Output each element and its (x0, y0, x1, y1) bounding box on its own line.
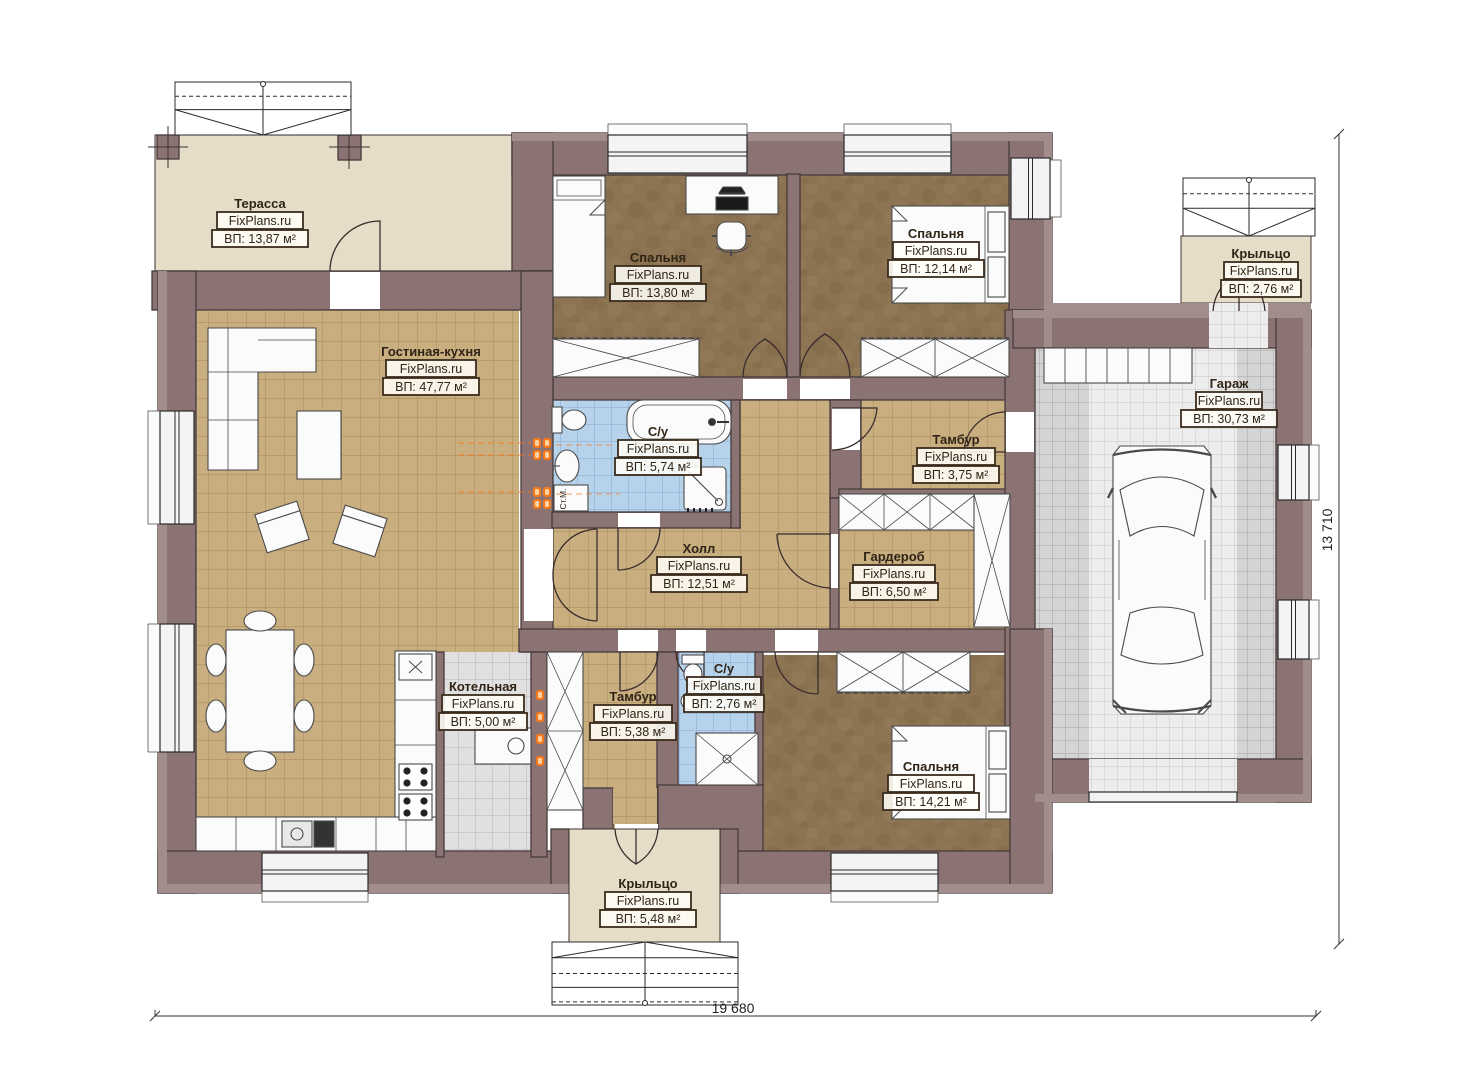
svg-text:ВП: 2,76 м²: ВП: 2,76 м² (1229, 282, 1294, 296)
svg-text:ВП: 5,74 м²: ВП: 5,74 м² (626, 460, 691, 474)
svg-text:ВП: 13,80 м²: ВП: 13,80 м² (622, 286, 694, 300)
svg-text:ВП: 5,00 м²: ВП: 5,00 м² (451, 715, 516, 729)
svg-text:ВП: 30,73 м²: ВП: 30,73 м² (1193, 412, 1265, 426)
svg-text:Гардероб: Гардероб (863, 549, 924, 564)
svg-text:Терасса: Терасса (234, 196, 286, 211)
svg-text:Спальня: Спальня (908, 226, 964, 241)
svg-text:С/у: С/у (648, 424, 669, 439)
svg-text:FixPlans.ru: FixPlans.ru (693, 679, 756, 693)
svg-text:FixPlans.ru: FixPlans.ru (863, 567, 926, 581)
svg-text:FixPlans.ru: FixPlans.ru (617, 894, 680, 908)
svg-text:FixPlans.ru: FixPlans.ru (668, 559, 731, 573)
svg-text:Спальня: Спальня (903, 759, 959, 774)
svg-text:FixPlans.ru: FixPlans.ru (627, 268, 690, 282)
svg-text:ВП: 12,51 м²: ВП: 12,51 м² (663, 577, 735, 591)
svg-text:FixPlans.ru: FixPlans.ru (1198, 394, 1261, 408)
svg-text:С/у: С/у (714, 661, 735, 676)
svg-text:Спальня: Спальня (630, 250, 686, 265)
svg-text:FixPlans.ru: FixPlans.ru (905, 244, 968, 258)
svg-text:19 680: 19 680 (712, 1000, 755, 1016)
svg-text:ВП: 3,75 м²: ВП: 3,75 м² (924, 468, 989, 482)
svg-text:Холл: Холл (683, 541, 716, 556)
svg-text:Крыльцо: Крыльцо (1231, 246, 1290, 261)
svg-text:Тамбур: Тамбур (609, 689, 656, 704)
svg-text:ВП: 13,87 м²: ВП: 13,87 м² (224, 232, 296, 246)
svg-text:FixPlans.ru: FixPlans.ru (627, 442, 690, 456)
svg-text:Крыльцо: Крыльцо (618, 876, 677, 891)
svg-text:ВП: 14,21 м²: ВП: 14,21 м² (895, 795, 967, 809)
svg-text:Ст.М.: Ст.М. (558, 489, 568, 510)
svg-text:FixPlans.ru: FixPlans.ru (925, 450, 988, 464)
svg-text:Котельная: Котельная (449, 679, 517, 694)
svg-text:ВП: 47,77 м²: ВП: 47,77 м² (395, 380, 467, 394)
svg-text:ВП: 12,14 м²: ВП: 12,14 м² (900, 262, 972, 276)
svg-text:FixPlans.ru: FixPlans.ru (400, 362, 463, 376)
svg-text:FixPlans.ru: FixPlans.ru (1230, 264, 1293, 278)
svg-text:FixPlans.ru: FixPlans.ru (900, 777, 963, 791)
svg-text:ВП: 5,48 м²: ВП: 5,48 м² (616, 912, 681, 926)
svg-text:ВП: 5,38 м²: ВП: 5,38 м² (601, 725, 666, 739)
svg-text:FixPlans.ru: FixPlans.ru (229, 214, 292, 228)
svg-text:FixPlans.ru: FixPlans.ru (452, 697, 515, 711)
svg-text:Гараж: Гараж (1210, 376, 1250, 391)
svg-text:13 710: 13 710 (1319, 508, 1335, 551)
svg-text:Гостиная-кухня: Гостиная-кухня (381, 344, 481, 359)
svg-text:Тамбур: Тамбур (932, 432, 979, 447)
svg-text:ВП: 2,76 м²: ВП: 2,76 м² (692, 697, 757, 711)
svg-text:ВП: 6,50 м²: ВП: 6,50 м² (862, 585, 927, 599)
svg-text:FixPlans.ru: FixPlans.ru (602, 707, 665, 721)
